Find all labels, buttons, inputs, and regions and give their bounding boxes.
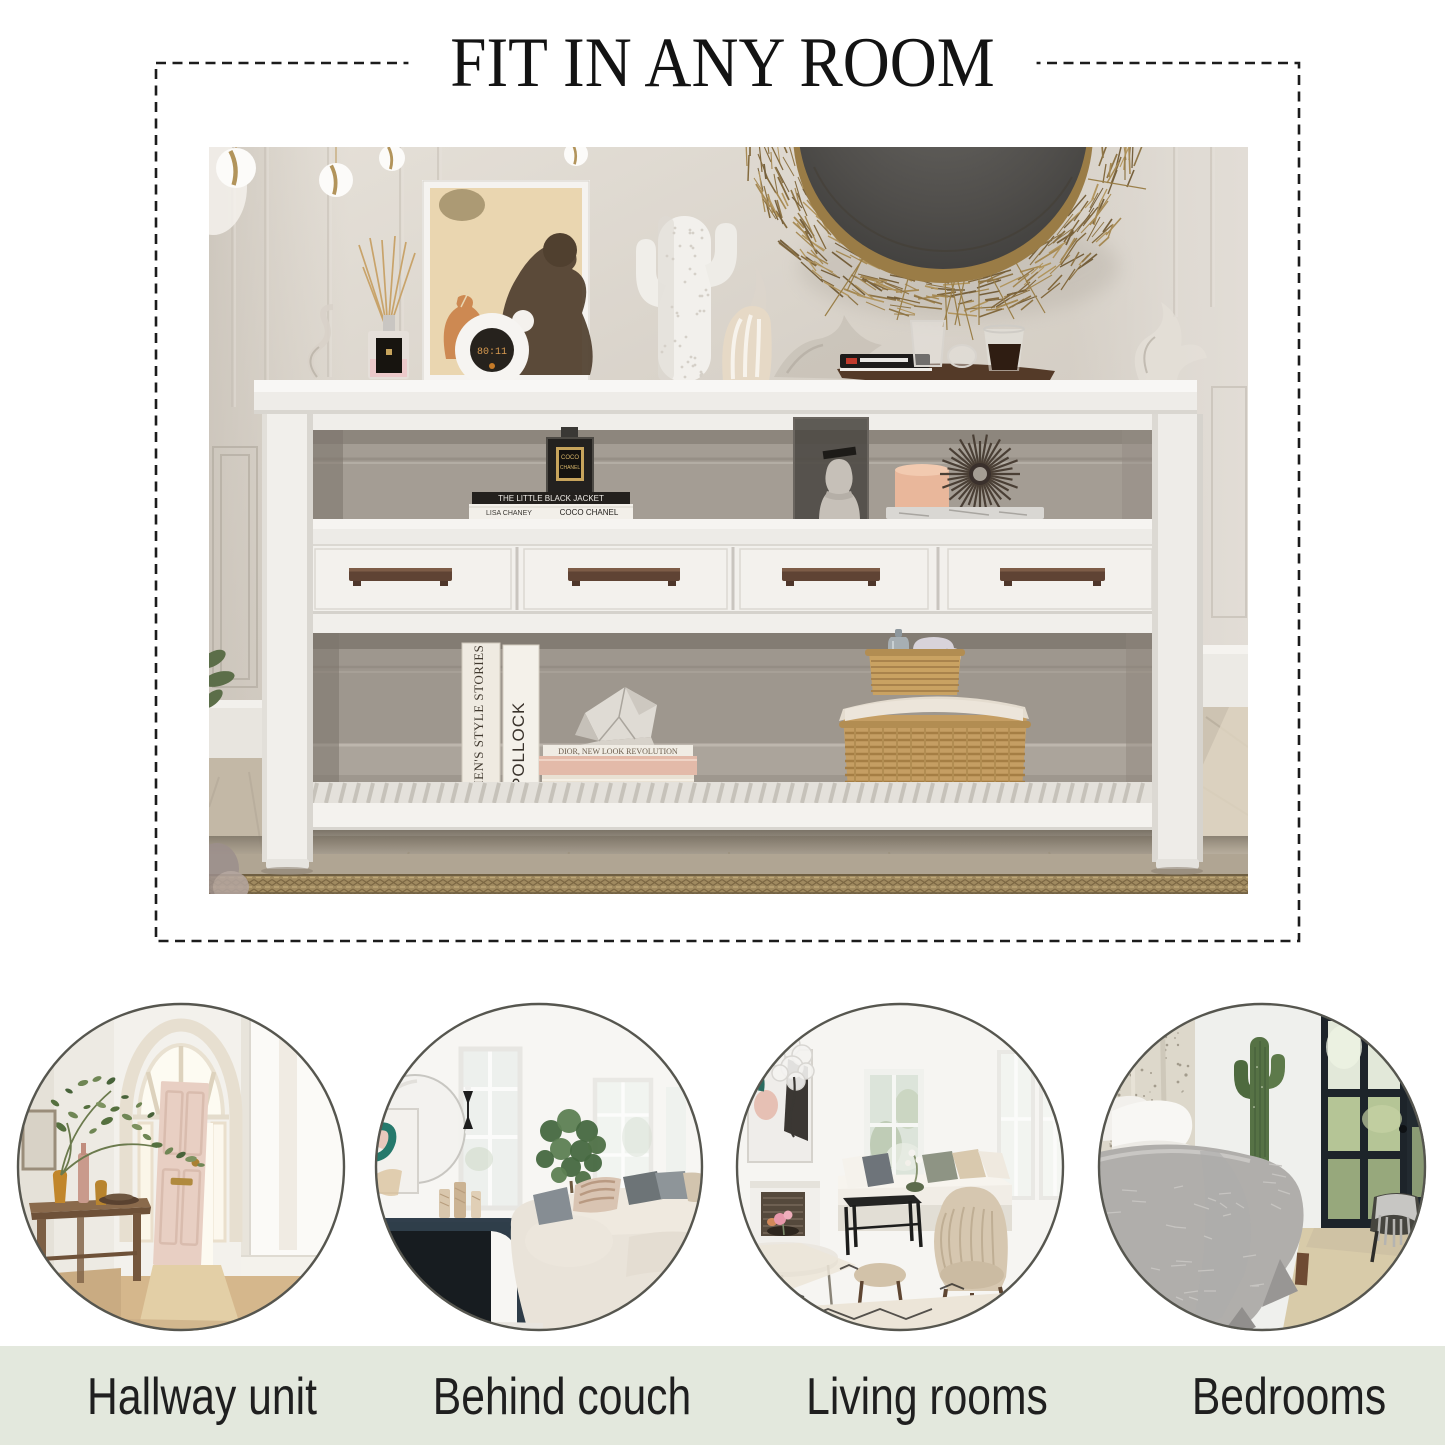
svg-text:COCO CHANEL: COCO CHANEL	[560, 508, 619, 517]
svg-text:POLLOCK: POLLOCK	[509, 702, 528, 789]
svg-text:80:11: 80:11	[477, 347, 507, 358]
svg-text:LISA CHANEY: LISA CHANEY	[486, 510, 532, 517]
svg-text:CHANEL: CHANEL	[560, 465, 581, 471]
svg-text:DIOR, NEW LOOK REVOLUTION: DIOR, NEW LOOK REVOLUTION	[558, 747, 678, 756]
svg-text:COCO: COCO	[561, 455, 579, 461]
svg-text:THE LITTLE BLACK JACKET: THE LITTLE BLACK JACKET	[498, 494, 604, 503]
svg-text:MEN'S STYLE STORIES: MEN'S STYLE STORIES	[471, 645, 486, 792]
